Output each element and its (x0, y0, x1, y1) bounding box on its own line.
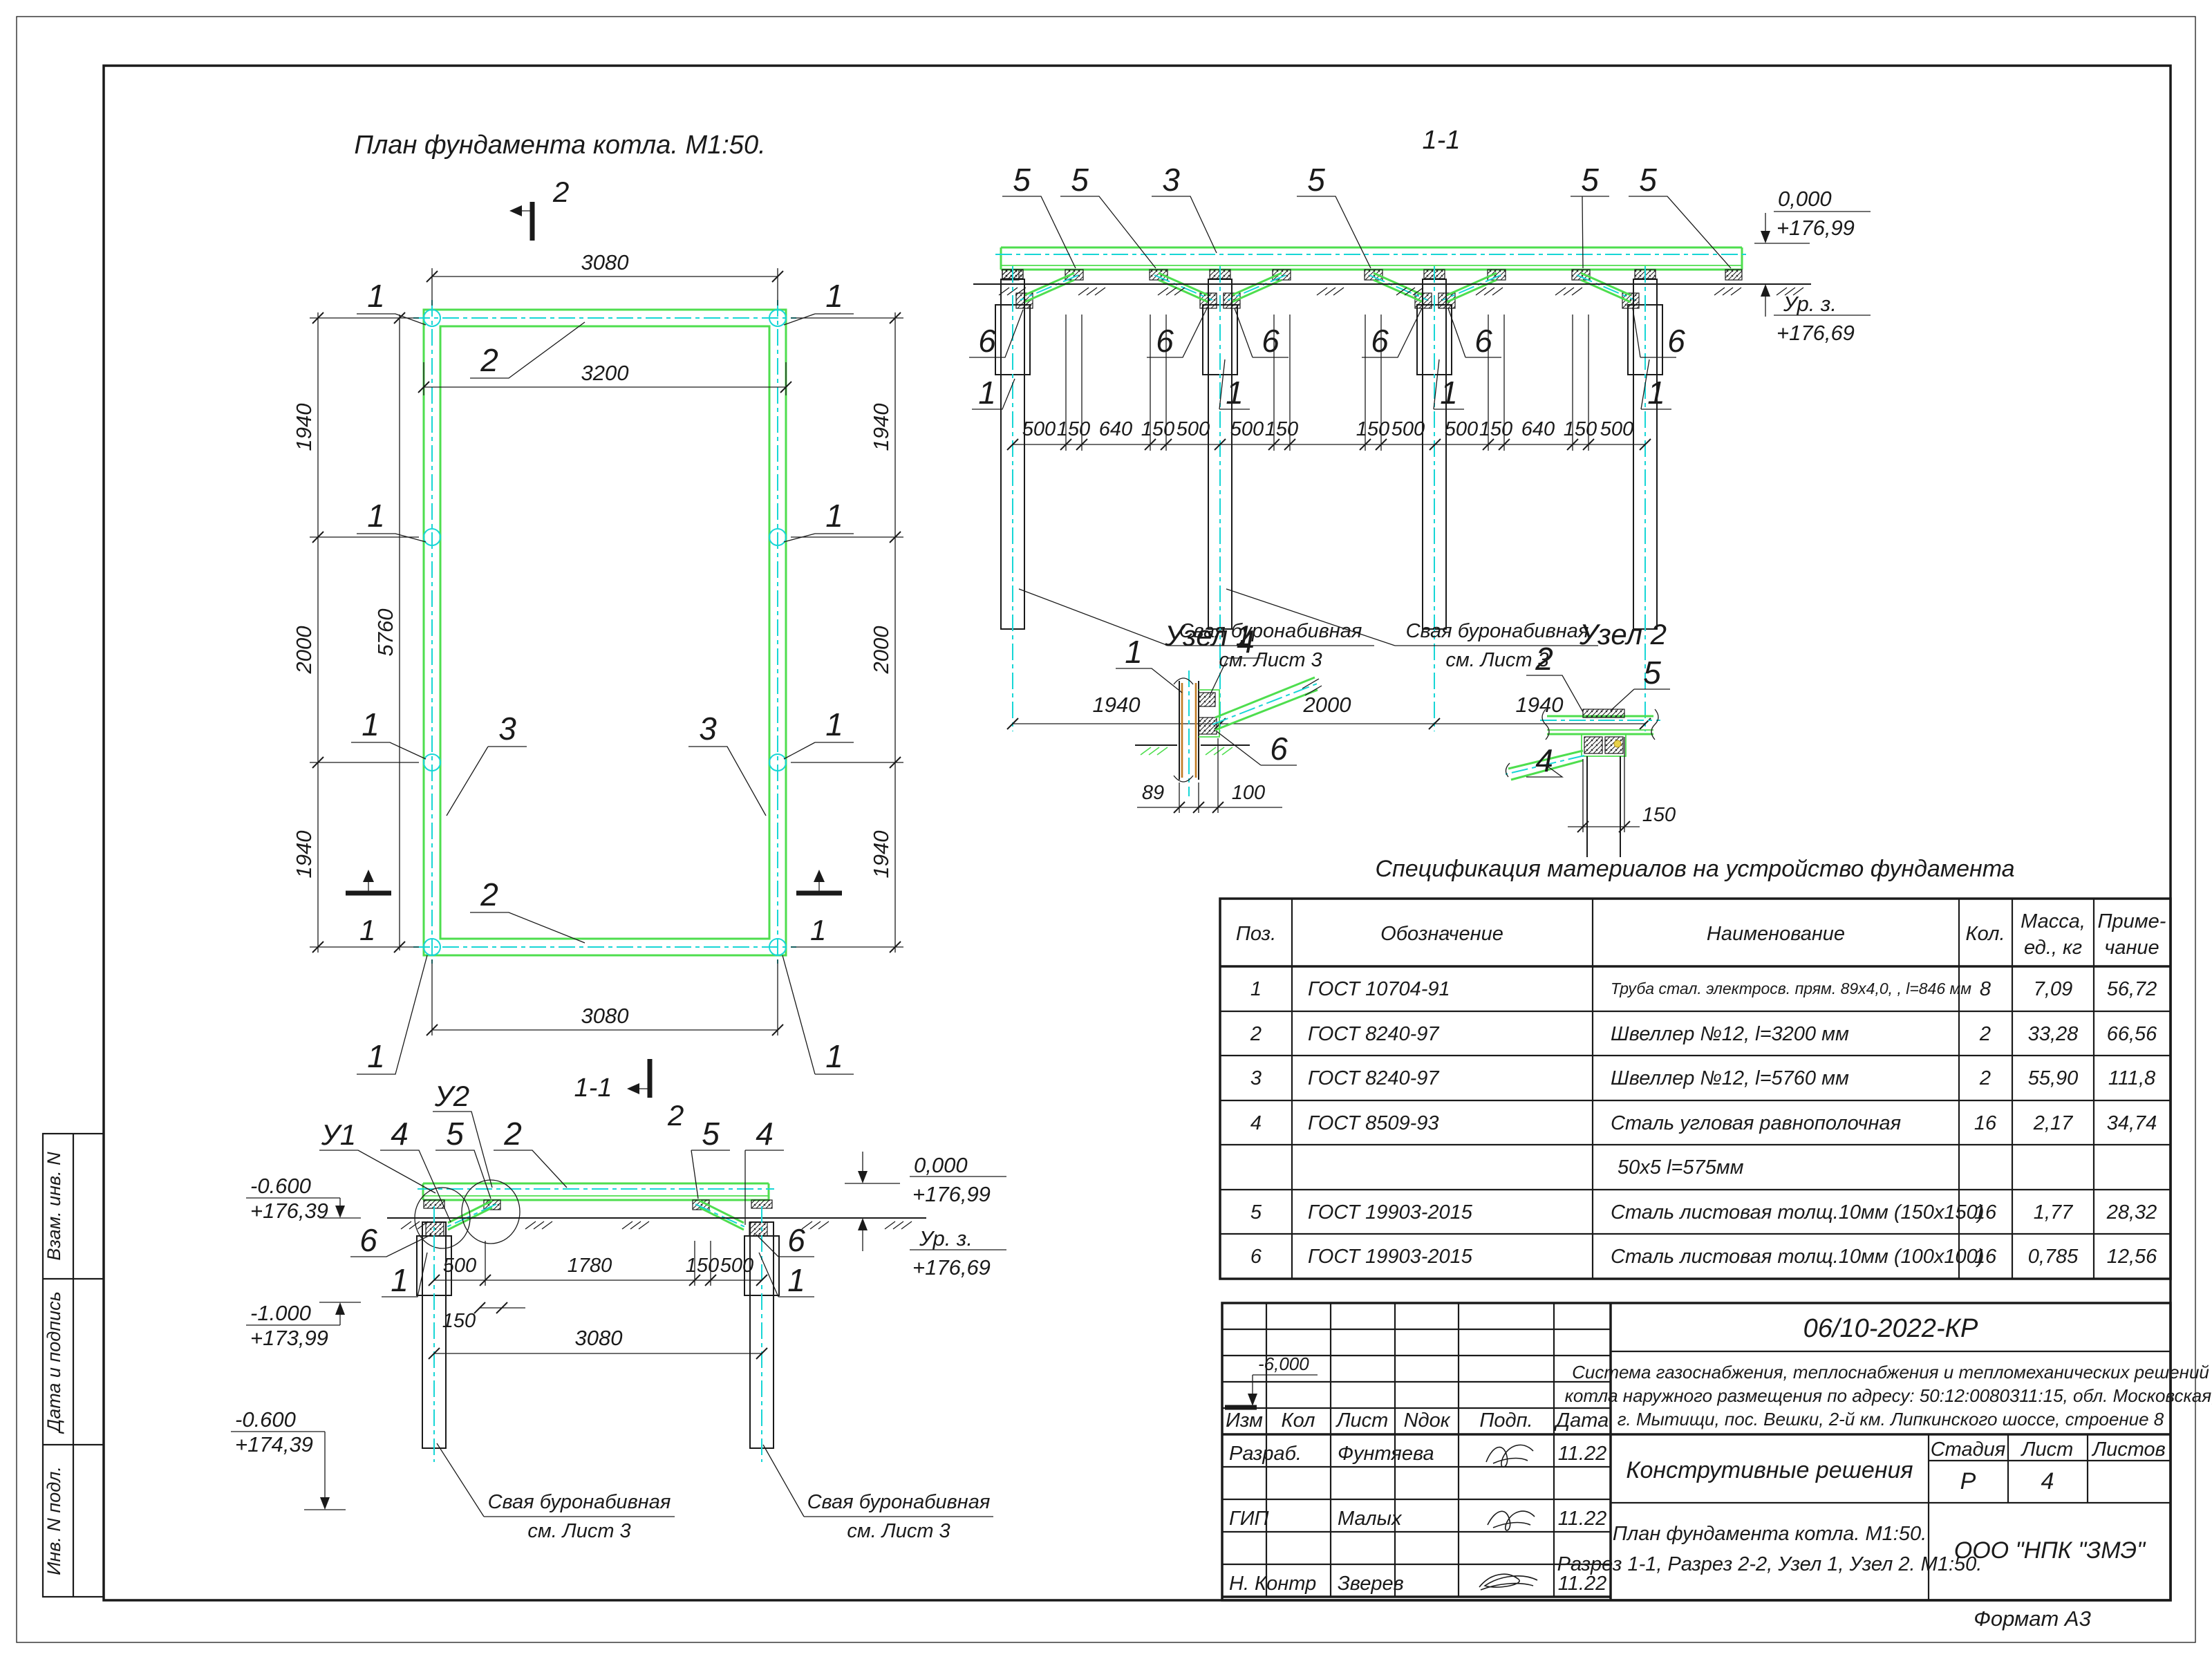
callout: 6 (1156, 323, 1174, 359)
plan-channel-inner (440, 326, 769, 939)
dim-label: 150 (686, 1255, 719, 1277)
callout: 6 (1371, 323, 1389, 359)
section-title: 1-1 (574, 1074, 612, 1103)
sidebar-label-vzam: Взам. инв. N (44, 1152, 64, 1261)
cell-mass: 1,77 (2034, 1201, 2074, 1224)
callout: 1 (1226, 375, 1244, 411)
elevation-marks: 0,000 +176,99 Ур. з. +176,69 (1754, 187, 1871, 345)
pile-note: см. Лист 3 (847, 1520, 950, 1542)
dim-label: 2000 (1303, 693, 1351, 717)
cell-mass: 55,90 (2028, 1067, 2079, 1089)
dim-label: 1940 (292, 404, 316, 451)
elev-value: +176,69 (1777, 321, 1855, 345)
callout: 1 (825, 278, 843, 314)
beam (995, 247, 1747, 270)
callout: 4 (391, 1116, 409, 1152)
col-header: Дата (1554, 1409, 1609, 1432)
signature (1486, 1445, 1533, 1467)
pile-notes: Свая буронабивная см. Лист 3 Свая бурона… (437, 1443, 993, 1542)
sig-role: Н. Контр (1229, 1573, 1316, 1595)
ground-grass (1141, 747, 1232, 755)
drawing-sheet: Взам. инв. N Дата и подпись Инв. N подл.… (0, 0, 2212, 1659)
detail-title: Узел 2 (1579, 618, 1667, 650)
section-1-1-bottom: 1-1 У1 4 5 У2 2 5 4 6 6 1 1 (231, 1074, 1006, 1542)
callout: 3 (1162, 162, 1180, 198)
col-header: Лист (1335, 1409, 1389, 1432)
elev-lines (1253, 1375, 1318, 1402)
title-block: -6,000 Изм Кол Лист Nдок Подп. Дата Разр… (1222, 1303, 2212, 1600)
sig-date: 11.22 (1558, 1443, 1606, 1465)
stage-header: Лист (2021, 1438, 2074, 1461)
pile-note: см. Лист 3 (527, 1520, 630, 1542)
callout: 1 (367, 1038, 385, 1074)
elev-label: -6,000 (1258, 1353, 1309, 1374)
cell-design: ГОСТ 10704-91 (1308, 978, 1450, 1000)
spec-header: Наименование (1707, 923, 1845, 945)
elevations-right: 0,000 +176,99 Ур. з. +176,69 (845, 1152, 1006, 1280)
cell-note: 111,8 (2108, 1067, 2155, 1089)
pile-callouts: 1 1 1 1 (972, 359, 1671, 411)
top-plate (1583, 709, 1624, 718)
cell-mass: 2,17 (2033, 1112, 2074, 1134)
spec-header: Поз. (1236, 923, 1276, 945)
sig-date: 11.22 (1558, 1508, 1606, 1530)
cell-design: ГОСТ 19903-2015 (1308, 1246, 1473, 1268)
pile-note: см. Лист 3 (1445, 649, 1548, 671)
section-mark-bars (346, 202, 842, 1098)
sheet-value: 4 (2041, 1468, 2054, 1494)
bolt-dot (1614, 740, 1621, 747)
cell-qty: 2 (1979, 1067, 1991, 1089)
elev-label: Ур. з. (1783, 292, 1837, 316)
spec-title: Спецификация материалов на устройство фу… (1375, 856, 2014, 882)
spec-row: 6 ГОСТ 19903-2015 Сталь листовая толщ.10… (1250, 1246, 2157, 1268)
elev-label: -1.000 (250, 1301, 311, 1325)
elev-label: 0,000 (914, 1153, 968, 1177)
dim-label: 150 (1564, 418, 1597, 440)
description-line: г. Мытищи, пос. Вешки, 2-й км. Липкинско… (1618, 1409, 2164, 1430)
piles (995, 266, 1662, 731)
stage-header: Стадия (1931, 1438, 2006, 1461)
dim-label: 500 (1600, 418, 1633, 440)
callout: 2 (1535, 641, 1553, 677)
company-name: ООО "НПК "ЗМЭ" (1954, 1537, 2146, 1564)
format-note: Формат А3 (1974, 1606, 2091, 1631)
callout: У1 (321, 1118, 356, 1151)
pile-notes: Свая буронабивная см. Лист 3 Свая бурона… (1019, 589, 1598, 671)
dim-label: 500 (1445, 418, 1478, 440)
drawing-title: Разрез 1-1, Разрез 2-2, Узел 1, Узел 2. … (1557, 1553, 1983, 1575)
cell-name: Сталь листовая толщ.10мм (100х100) (1611, 1246, 1984, 1268)
dim-label: 500 (1177, 418, 1210, 440)
cell-note: 66,56 (2107, 1023, 2157, 1045)
cell-pos: 1 (1250, 978, 1262, 1000)
callout: 6 (1262, 323, 1280, 359)
section-title: 1-1 (1423, 126, 1461, 155)
cell-mass: 33,28 (2028, 1023, 2079, 1045)
sidebar-stamp: Взам. инв. N Дата и подпись Инв. N подл. (43, 1134, 104, 1597)
callout: 1 (367, 278, 385, 314)
dim-label: 500 (443, 1255, 476, 1277)
section-mark-label: 1 (810, 914, 826, 946)
cell-mass: 7,09 (2034, 978, 2072, 1000)
cell-note: 34,74 (2107, 1112, 2157, 1134)
gusset-plates (1002, 270, 1742, 308)
spec-row: 4 ГОСТ 8509-93 Сталь угловая равнополочн… (1250, 1112, 2157, 1134)
detail-uzel-1: Узел 1 89 100 1 4 6 (1116, 619, 1322, 813)
cell-pos: 6 (1250, 1246, 1262, 1268)
callout: 1 (1125, 634, 1143, 670)
cell-design: ГОСТ 8240-97 (1308, 1067, 1440, 1089)
col-header: Изм (1226, 1409, 1263, 1432)
callout: 5 (1639, 162, 1657, 198)
dim-label: 150 (1265, 418, 1298, 440)
cell-pos: 2 (1250, 1023, 1262, 1045)
elev-label: Ур. з. (919, 1226, 973, 1250)
callout: 4 (1237, 624, 1255, 659)
spec-row: 1 ГОСТ 10704-91 Труба стал. электросв. п… (1250, 978, 2157, 1000)
elev-value: +173,99 (250, 1326, 328, 1350)
signature (1479, 1574, 1537, 1590)
section-title-cell: Конструтивные решения (1626, 1457, 1913, 1483)
callout: 5 (446, 1116, 464, 1152)
callout: 5 (1643, 655, 1661, 691)
dim-label: 89 (1142, 782, 1164, 804)
callout: 5 (702, 1116, 720, 1152)
callout: 1 (1647, 375, 1665, 411)
cell-qty: 8 (1980, 978, 1991, 1000)
spec-header: чание (2104, 937, 2159, 959)
spec-header: Приме- (2098, 910, 2166, 932)
dim-label: 500 (1022, 418, 1056, 440)
plan-pile-circles (424, 310, 786, 955)
dim-label: 150 (1141, 418, 1174, 440)
pile-note: Свая буронабивная (1406, 620, 1589, 642)
callout: 2 (503, 1116, 522, 1152)
spec-header: Обозначение (1380, 923, 1503, 945)
callout: 1 (391, 1262, 409, 1298)
elev-label: 0,000 (1778, 187, 1832, 211)
dim-label: 150 (1057, 418, 1090, 440)
spec-table: Спецификация материалов на устройство фу… (1220, 856, 2171, 1279)
spec-row: 3 ГОСТ 8240-97 Швеллер №12, l=5760 мм 2 … (1250, 1067, 2155, 1089)
elev-label: -0.600 (235, 1407, 296, 1432)
cell-pos: 5 (1250, 1201, 1262, 1224)
cell-name: Сталь угловая равнополочная (1611, 1112, 1901, 1134)
cell-design: ГОСТ 8240-97 (1308, 1023, 1440, 1045)
top-callouts: 5 5 3 5 5 5 (1002, 162, 1731, 268)
callout: 6 (359, 1222, 377, 1258)
beam (418, 1183, 774, 1200)
dim-label: 1780 (568, 1255, 612, 1277)
gusset-callouts: 6 6 6 6 6 6 (969, 308, 1685, 359)
dims: 500 1780 150 500 150 3080 (429, 1241, 767, 1359)
drawing-title: План фундамента котла. М1:50. (1613, 1523, 1927, 1545)
detail1-dims: 89 100 (1137, 738, 1282, 813)
sig-name: Фунтяева (1338, 1443, 1434, 1465)
sig-name: Малых (1338, 1508, 1403, 1530)
dim-label: 500 (720, 1255, 753, 1277)
dim-label: 3080 (581, 250, 629, 274)
cell-mass: 0,785 (2028, 1246, 2079, 1268)
dim-label: 1940 (292, 831, 316, 879)
plan-view: План фундамента котла. М1:50. 3080 3200 … (292, 131, 903, 1132)
dim-label: 150 (1356, 418, 1389, 440)
cell-qty: 16 (1974, 1112, 1997, 1134)
elev-value: +176,39 (250, 1199, 328, 1223)
cell-qty: 16 (1974, 1201, 1997, 1224)
pile-note: Свая буронабивная (807, 1491, 991, 1513)
elev-label: -0.600 (250, 1174, 311, 1198)
callout: 1 (362, 706, 379, 742)
callout: 6 (1474, 323, 1492, 359)
elev-value: +176,99 (1777, 216, 1855, 240)
section-mark-label: 1 (359, 914, 375, 946)
callout: 5 (1581, 162, 1599, 198)
cell-note: 56,72 (2107, 978, 2157, 1000)
callout: 1 (1440, 375, 1458, 411)
dim-label: 2000 (869, 626, 893, 675)
callout-leaders (969, 308, 1676, 357)
signature (1488, 1511, 1535, 1530)
elev-value: +176,69 (912, 1255, 991, 1280)
plan-title: План фундамента котла. М1:50. (354, 131, 765, 160)
cell-qty: 16 (1974, 1246, 1997, 1268)
cell-qty: 2 (1979, 1023, 1991, 1045)
stage-header: Листов (2091, 1438, 2166, 1461)
dim-label: 3200 (581, 361, 629, 385)
braces (1020, 273, 1635, 302)
cell-name: Труба стал. электросв. прям. 89х4,0, , l… (1611, 980, 1971, 997)
callout: 3 (699, 711, 717, 747)
section-mark-stems (368, 211, 819, 1089)
section-mark-label: 2 (667, 1099, 684, 1132)
dim-chain: 500 150 640 150 500 500 150 150 500 500 … (1007, 315, 1651, 451)
description-line: котла наружного размещения по адресу: 50… (1565, 1385, 2212, 1406)
callout: 5 (1013, 162, 1031, 198)
callout: 2 (480, 342, 498, 378)
bracket (1582, 734, 1626, 756)
cell-note: 28,32 (2106, 1201, 2157, 1224)
dim-label: 150 (442, 1310, 476, 1332)
spec-header: ед., кг (2024, 937, 2082, 959)
elev-value: +176,99 (912, 1182, 991, 1206)
cell-name: Швеллер №12, l=5760 мм (1611, 1067, 1849, 1089)
dim-label: 500 (1391, 418, 1425, 440)
pile-note: см. Лист 3 (1219, 649, 1322, 671)
sig-role: ГИП (1229, 1508, 1270, 1530)
ground-hatch (401, 1221, 912, 1229)
pile-below (1587, 756, 1620, 857)
callout: 6 (787, 1222, 805, 1258)
spec-row: 5 ГОСТ 19903-2015 Сталь листовая толщ.10… (1250, 1201, 2157, 1224)
plan-section-marks: 2 2 1 1 (346, 176, 842, 1132)
cell-pos: 3 (1250, 1067, 1262, 1089)
sig-date: 11.22 (1558, 1573, 1606, 1595)
callout: 6 (1667, 323, 1685, 359)
col-header: Подп. (1479, 1409, 1533, 1432)
elevations-left: -0.600 +176,39 -1.000 +173,99 -0.600 +17… (231, 1174, 361, 1510)
dim-label: 640 (1521, 418, 1555, 440)
stage-value: Р (1960, 1468, 1976, 1494)
doc-number: 06/10-2022-КР (1803, 1314, 1978, 1343)
dim-label: 3080 (581, 1004, 629, 1028)
dim-label: 1940 (1516, 693, 1564, 717)
plan-channel-outer (424, 310, 786, 955)
elevation-mark-6000: -6,000 (1225, 1353, 1318, 1407)
callout: 4 (1535, 742, 1553, 778)
callout: 1 (787, 1262, 805, 1298)
callout: 1 (978, 375, 996, 411)
sidebar-label-inv: Инв. N подл. (44, 1466, 64, 1575)
callout: 1 (825, 706, 843, 742)
spec-row: 50х5 l=575мм (1618, 1156, 1744, 1179)
spec-header: Кол. (1966, 923, 2005, 945)
callout: 1 (825, 1038, 843, 1074)
callout: 5 (1307, 162, 1325, 198)
callout-leaders (1002, 196, 1731, 268)
sig-name: Зверев (1338, 1573, 1404, 1595)
dim-label: 1940 (869, 831, 893, 879)
dim-label: 5760 (373, 609, 397, 657)
spec-header: Масса, (2021, 910, 2086, 932)
dim-label: 150 (1642, 804, 1676, 826)
cell-design: ГОСТ 19903-2015 (1308, 1201, 1473, 1224)
col-header: Кол (1282, 1409, 1315, 1432)
col-header: Nдок (1404, 1409, 1451, 1432)
callout: 2 (480, 877, 498, 912)
section-mark-label: 2 (552, 176, 569, 208)
dim-label: 150 (1479, 418, 1512, 440)
pile-note: Свая буронабивная (488, 1491, 671, 1513)
elev-value: +174,39 (235, 1432, 313, 1456)
description-line: Система газоснабжения, теплоснабжения и … (1572, 1362, 2209, 1382)
callout: 6 (1270, 731, 1288, 767)
dim-label: 1940 (1093, 693, 1141, 717)
dim-label: 100 (1232, 782, 1265, 804)
cell-name: 50х5 l=575мм (1618, 1156, 1744, 1179)
callout: 3 (498, 711, 516, 747)
cell-design: ГОСТ 8509-93 (1308, 1112, 1439, 1134)
dim-label: 3080 (575, 1326, 623, 1350)
spec-row: 2 ГОСТ 8240-97 Швеллер №12, l=3200 мм 2 … (1250, 1023, 2157, 1045)
callout: 1 (825, 498, 843, 534)
sig-role: Разраб. (1229, 1443, 1302, 1465)
dim-label: 2000 (292, 626, 316, 675)
cell-pos: 4 (1250, 1112, 1262, 1134)
callout: 6 (978, 323, 996, 359)
callout: 5 (1071, 162, 1089, 198)
section-1-1-top: 1-1 5 5 3 5 5 (969, 126, 1871, 731)
callout-leaders (972, 359, 1671, 409)
cell-name: Сталь листовая толщ.10мм (150х150) (1611, 1201, 1984, 1224)
cell-note: 12,56 (2107, 1246, 2157, 1268)
dim-label: 1940 (869, 404, 893, 451)
dim-label: 500 (1230, 418, 1264, 440)
callout: 4 (756, 1116, 774, 1152)
bottom-chain: 1940 2000 1940 (1007, 693, 1651, 729)
callout: У2 (434, 1080, 469, 1112)
cell-name: Швеллер №12, l=3200 мм (1611, 1023, 1849, 1045)
callout: 1 (367, 498, 385, 534)
dim-label: 640 (1099, 418, 1132, 440)
sidebar-label-data: Дата и подпись (44, 1291, 64, 1434)
plan-axes (413, 300, 796, 965)
